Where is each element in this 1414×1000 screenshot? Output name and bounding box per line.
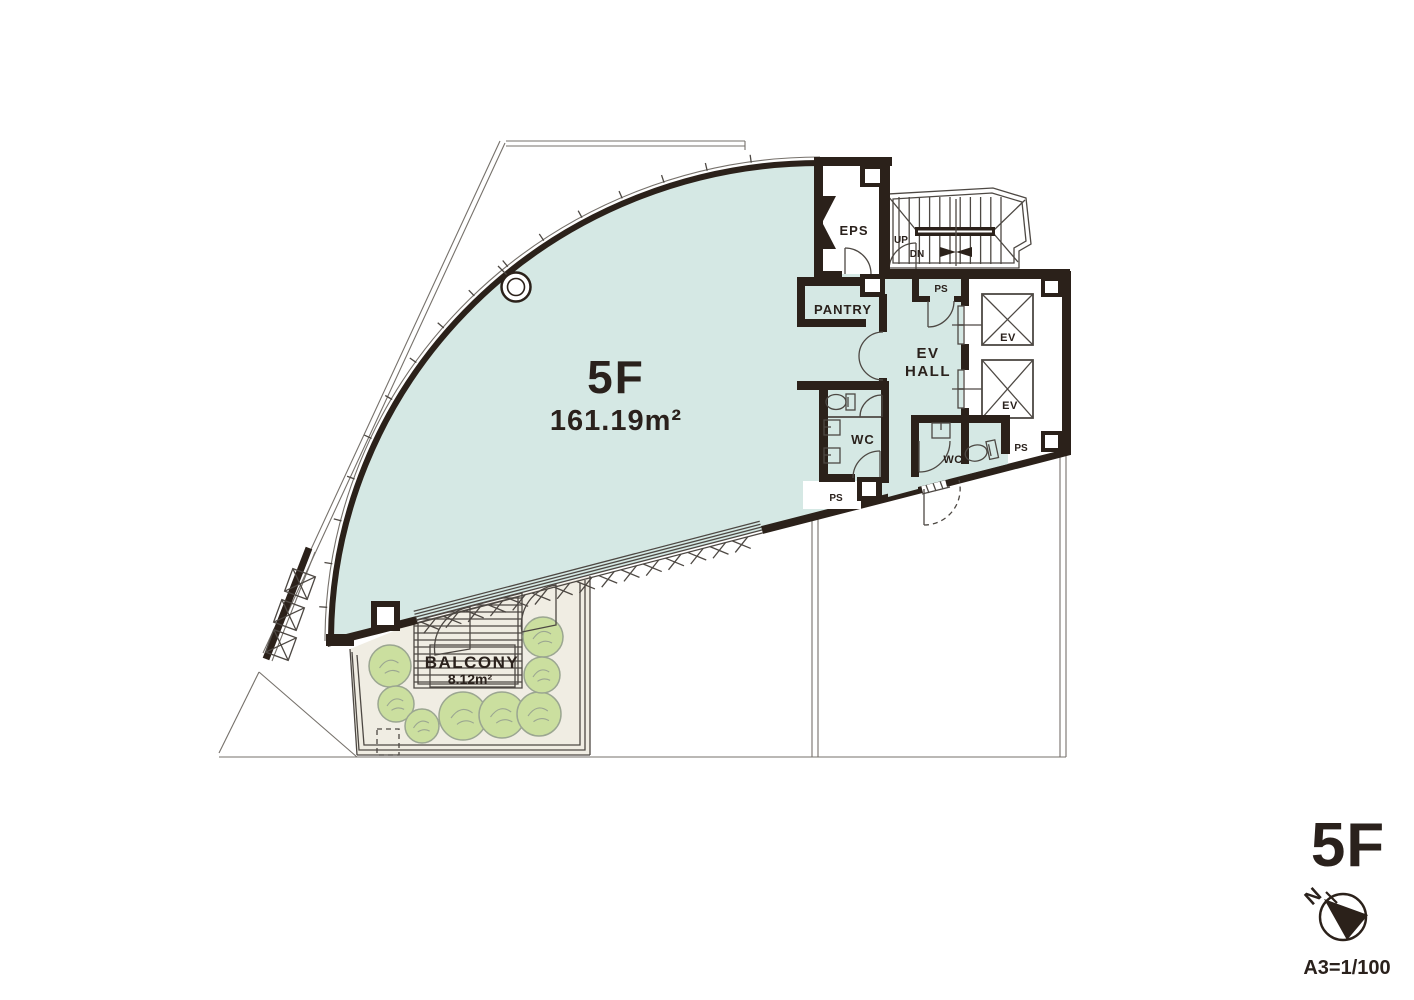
label-ev-hall-1: EV	[916, 345, 939, 362]
main-room-area: 161.19m²	[550, 405, 682, 437]
label-wc-left: WC	[851, 432, 875, 447]
floorplan-canvas: 5F 161.19m² BALCONY 8.12m² EPS PANTRY EV…	[0, 0, 1414, 1000]
label-ps-lower-left: PS	[829, 493, 843, 504]
sheet-scale: A3=1/100	[1303, 957, 1390, 979]
label-ps-stair: PS	[934, 284, 948, 295]
balcony-label: BALCONY	[425, 653, 520, 672]
bush	[369, 645, 411, 687]
west-diagonal-feature	[266, 548, 316, 661]
floorplan-drawing: 5F 161.19m² BALCONY 8.12m² EPS PANTRY EV…	[0, 0, 1414, 1000]
bush	[523, 617, 563, 657]
label-eps: EPS	[839, 223, 868, 238]
bush	[405, 709, 439, 743]
main-room-name: 5F	[587, 351, 645, 403]
north-arrow: N	[1301, 884, 1368, 940]
label-ev-lower: EV	[1002, 400, 1018, 412]
label-ev-upper: EV	[1000, 332, 1016, 344]
label-up: UP	[894, 235, 908, 246]
label-ps-lower-right: PS	[1014, 443, 1028, 454]
label-down: DN	[910, 249, 924, 260]
label-ev-hall-2: HALL	[905, 363, 951, 380]
title-block: 5F N A3=1/100	[1301, 811, 1391, 979]
bush	[524, 657, 560, 693]
balcony-area: 8.12m²	[448, 671, 493, 687]
round-column	[502, 273, 531, 302]
sheet-floor-title: 5F	[1311, 811, 1385, 880]
label-pantry: PANTRY	[814, 302, 872, 317]
exterior-door	[920, 479, 960, 525]
label-wc-right: WC	[943, 454, 962, 466]
bush	[517, 692, 561, 736]
